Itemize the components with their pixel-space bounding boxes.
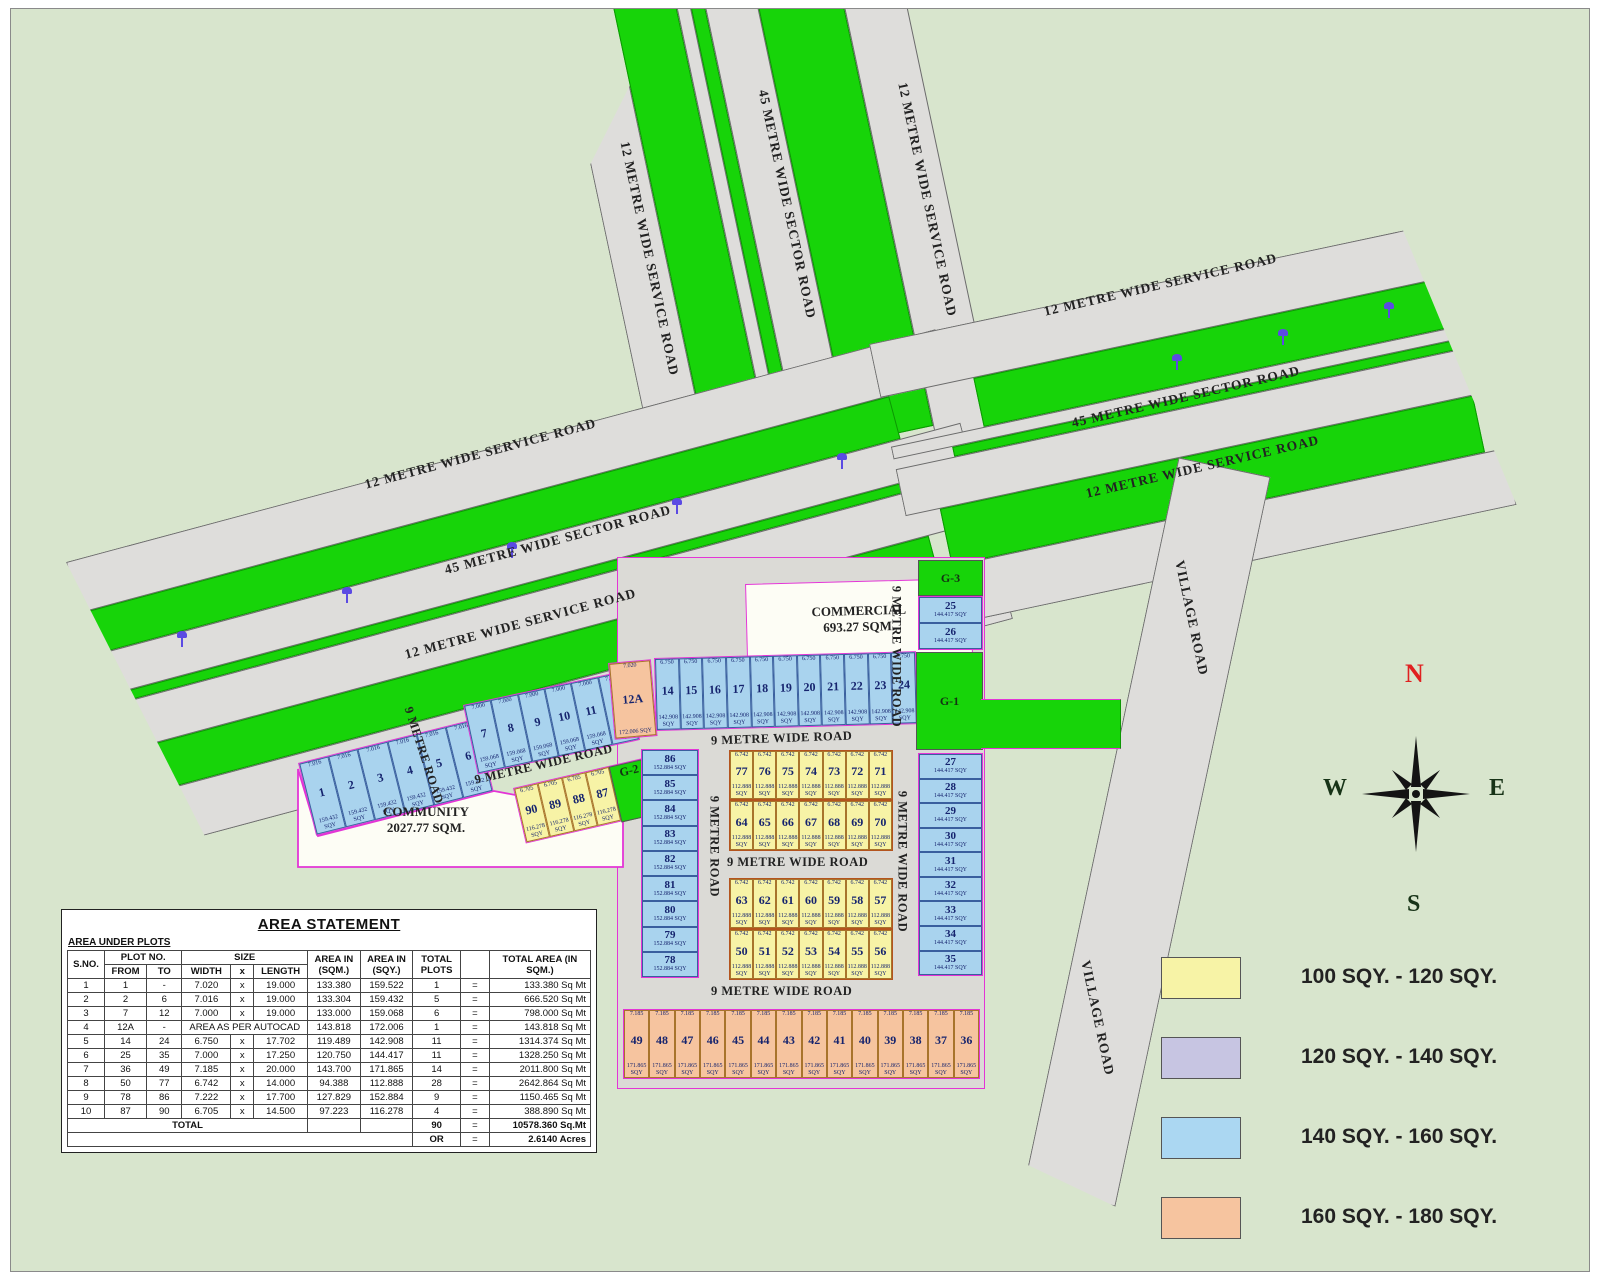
plot-number: 66 <box>782 816 794 829</box>
plot-number: 32 <box>945 880 956 891</box>
plot-number: 12A <box>622 692 644 707</box>
table-row: 2267.016x19.000133.304159.4325=666.520 S… <box>68 993 591 1007</box>
table-cell: 120.750 <box>308 1049 361 1063</box>
legend: 100 SQY. - 120 SQY.120 SQY. - 140 SQY.14… <box>1161 957 1497 1272</box>
table-cell: 388.890 Sq Mt <box>489 1105 590 1119</box>
plot-number: 59 <box>828 894 840 907</box>
plot-width: 6.742 <box>851 802 865 809</box>
plot-cell-82: 82152.884 SQY <box>642 851 698 876</box>
plot-number: 1 <box>317 785 326 799</box>
table-row: 1087906.705x14.50097.223116.2784=388.890… <box>68 1105 591 1119</box>
plot-number: 11 <box>584 703 598 718</box>
plot-area: 112.888 SQY <box>754 913 775 927</box>
plot-number: 4 <box>405 763 414 777</box>
table-cell: 19.000 <box>254 979 308 993</box>
plot-number: 45 <box>732 1034 744 1047</box>
plot-width: 6.742 <box>804 802 818 809</box>
plot-width: 6.705 <box>520 785 535 795</box>
plot-number: 49 <box>631 1034 643 1047</box>
plot-col-86-78: 86152.884 SQY85152.884 SQY84152.884 SQY8… <box>641 749 699 978</box>
table-cell: 159.432 <box>360 993 413 1007</box>
plot-area: 112.888 SQY <box>847 913 868 927</box>
table-cell: x <box>231 993 254 1007</box>
table-cell: 14.000 <box>254 1077 308 1091</box>
table-cell: = <box>460 1063 489 1077</box>
plot-cell-67: 6.74267112.888 SQY <box>799 801 822 850</box>
plot-number: 80 <box>665 905 676 916</box>
plot-number: 70 <box>874 816 886 829</box>
table-cell: 152.884 <box>360 1091 413 1105</box>
plot-area: 142.908 SQY <box>705 713 727 728</box>
plot-cell-66: 6.74266112.888 SQY <box>776 801 799 850</box>
plot-area: 144.417 SQY <box>934 916 967 923</box>
tree-icon <box>836 453 848 470</box>
table-cell: = <box>460 1077 489 1091</box>
plot-area: 112.888 SQY <box>777 913 798 927</box>
plot-cell-52: 6.74252112.888 SQY <box>776 930 799 979</box>
table-cell: = <box>460 1091 489 1105</box>
plot-cell-50: 6.74250112.888 SQY <box>730 930 753 979</box>
table-subtitle: AREA UNDER PLOTS <box>68 937 591 948</box>
table-row: 736497.185x20.000143.700171.86514=2011.8… <box>68 1063 591 1077</box>
table-cell <box>308 1119 361 1133</box>
plot-area: 112.888 SQY <box>800 964 821 978</box>
compass-east: E <box>1489 775 1505 802</box>
plot-cell-51: 6.74251112.888 SQY <box>753 930 776 979</box>
plot-area: 112.888 SQY <box>847 964 868 978</box>
plot-width: 6.742 <box>827 931 841 938</box>
col-header-plot-no: PLOT NO. <box>105 951 182 965</box>
plot-block-63-57: 6.74263112.888 SQY6.74262112.888 SQY6.74… <box>729 878 893 929</box>
community-label: COMMUNITY 2027.77 SQM. <box>331 804 521 836</box>
plot-width: 6.742 <box>851 752 865 759</box>
table-cell: x <box>231 979 254 993</box>
legend-swatch <box>1161 1037 1241 1079</box>
plot-area: 171.865 SQY <box>625 1063 648 1077</box>
legend-label: 100 SQY. - 120 SQY. <box>1301 965 1497 989</box>
road-label-9mw: 9 METRE WIDE ROAD <box>711 984 852 999</box>
table-cell: 133.304 <box>308 993 361 1007</box>
table-cell: 9 <box>68 1091 105 1105</box>
table-cell: x <box>231 1105 254 1119</box>
plot-cell-48: 7.18548171.865 SQY <box>649 1010 674 1078</box>
tree-icon <box>1277 329 1289 346</box>
plot-width: 6.742 <box>851 880 865 887</box>
plot-width: 6.742 <box>758 931 772 938</box>
plot-area: 152.884 SQY <box>653 815 686 822</box>
plot-area: 144.417 SQY <box>934 842 967 849</box>
table-cell: = <box>460 1119 489 1133</box>
table-cell: 35 <box>147 1049 182 1063</box>
table-cell: 143.818 Sq Mt <box>489 1021 590 1035</box>
plot-cell-76: 6.74276112.888 SQY <box>753 751 776 799</box>
community-area-value: 2027.77 SQM. <box>331 820 521 836</box>
plot-cell-69: 6.74269112.888 SQY <box>846 801 869 850</box>
plot-width: 6.742 <box>851 931 865 938</box>
plot-width: 6.742 <box>804 880 818 887</box>
table-cell: 2 <box>105 993 147 1007</box>
plot-number: 81 <box>665 880 676 891</box>
plot-area: 112.888 SQY <box>847 784 868 798</box>
plot-cell-63: 6.74263112.888 SQY <box>730 879 753 928</box>
plot-number: 48 <box>656 1034 668 1047</box>
col-header-total-area: TOTAL AREA (IN SQM.) <box>489 951 590 979</box>
table-cell: x <box>231 1063 254 1077</box>
plot-number: 56 <box>874 945 886 958</box>
plot-area: 112.888 SQY <box>824 964 845 978</box>
legend-item: 120 SQY. - 140 SQY. <box>1161 1037 1497 1117</box>
plot-area: 171.865 SQY <box>777 1063 800 1077</box>
plot-width: 6.742 <box>874 931 888 938</box>
plot-area: 144.417 SQY <box>934 793 967 800</box>
plot-width: 6.742 <box>804 931 818 938</box>
table-cell: 8 <box>68 1077 105 1091</box>
table-cell: 2 <box>68 993 105 1007</box>
table-cell: = <box>460 1049 489 1063</box>
plot-cell-86: 86152.884 SQY <box>642 750 698 775</box>
plot-area: 112.888 SQY <box>870 964 891 978</box>
plot-area: 112.888 SQY <box>731 835 752 849</box>
table-cell: 28 <box>413 1077 460 1091</box>
plot-cell-72: 6.74272112.888 SQY <box>846 751 869 799</box>
plot-width: 6.742 <box>874 752 888 759</box>
road-label-9mw-vertical: 9 METRE ROAD <box>707 762 722 932</box>
plot-12a: 7.02012A172.006 SQY <box>608 659 658 739</box>
table-cell: 4 <box>68 1021 105 1035</box>
plot-cell-85: 85152.884 SQY <box>642 775 698 800</box>
table-cell: x <box>231 1049 254 1063</box>
plot-area: 152.884 SQY <box>653 790 686 797</box>
table-cell: x <box>231 1007 254 1021</box>
plot-area: 112.888 SQY <box>777 784 798 798</box>
table-cell: 36 <box>105 1063 147 1077</box>
table-cell <box>68 1133 413 1147</box>
plot-cell-56: 6.74256112.888 SQY <box>869 930 892 979</box>
plot-width: 6.750 <box>707 658 721 665</box>
or-label: OR <box>413 1133 460 1147</box>
table-cell: 5 <box>413 993 460 1007</box>
plot-cell-25: 25144.417 SQY <box>919 597 982 623</box>
plot-number: 76 <box>759 765 771 778</box>
plot-number: 7 <box>480 726 489 740</box>
plot-width: 6.742 <box>804 752 818 759</box>
plot-number: 78 <box>665 955 676 966</box>
plot-area: 116.278 SQY <box>595 806 620 825</box>
plot-area: 171.865 SQY <box>803 1063 826 1077</box>
plot-area: 112.888 SQY <box>754 835 775 849</box>
green-arm-g1 <box>981 699 1121 749</box>
col-header-total-plots: TOTAL PLOTS <box>413 951 460 979</box>
plot-area: 116.278 SQY <box>548 817 573 836</box>
table-cell: 6.750 <box>182 1035 231 1049</box>
plot-area: 142.908 SQY <box>752 712 774 727</box>
table-cell: AREA AS PER AUTOCAD <box>182 1021 308 1035</box>
plot-number: 84 <box>665 804 676 815</box>
plot-area: 112.888 SQY <box>824 913 845 927</box>
table-cell: 86 <box>147 1091 182 1105</box>
plot-width: 6.750 <box>755 657 769 664</box>
plot-width: 6.742 <box>781 880 795 887</box>
plot-area: 171.865 SQY <box>726 1063 749 1077</box>
plot-number: 14 <box>662 684 674 697</box>
plot-area: 112.888 SQY <box>777 835 798 849</box>
plot-area: 112.888 SQY <box>800 835 821 849</box>
plot-cell-77: 6.74277112.888 SQY <box>730 751 753 799</box>
plot-area: 112.888 SQY <box>824 784 845 798</box>
table-cell: 142.908 <box>360 1035 413 1049</box>
plot-area: 116.278 SQY <box>524 822 549 841</box>
plot-row-14-24: 6.75014142.908 SQY6.75015142.908 SQY6.75… <box>654 651 918 731</box>
plot-number: 29 <box>945 806 956 817</box>
legend-item: 160 SQY. - 180 SQY. <box>1161 1197 1497 1272</box>
plot-width: 7.185 <box>807 1011 821 1018</box>
plot-cell-78: 78152.884 SQY <box>642 952 698 977</box>
compass-rose: N W E S <box>1321 659 1511 929</box>
plot-area: 171.865 SQY <box>853 1063 876 1077</box>
legend-label: 120 SQY. - 140 SQY. <box>1301 1045 1497 1069</box>
plot-cell-31: 31144.417 SQY <box>919 852 982 877</box>
plot-width: 6.742 <box>735 880 749 887</box>
table-cell: - <box>147 1021 182 1035</box>
plot-width: 6.742 <box>781 752 795 759</box>
plot-cell-43: 7.18543171.865 SQY <box>776 1010 801 1078</box>
plot-width: 7.185 <box>706 1011 720 1018</box>
table-cell: 1314.374 Sq Mt <box>489 1035 590 1049</box>
table-cell: 11 <box>413 1049 460 1063</box>
plot-width: 7.016 <box>425 730 440 740</box>
plot-number: 46 <box>707 1034 719 1047</box>
plot-width: 7.016 <box>395 738 410 748</box>
plot-cell-21: 6.75021142.908 SQY <box>820 654 845 726</box>
plot-number: 35 <box>945 954 956 965</box>
plot-number: 15 <box>685 683 697 696</box>
plot-cell-28: 28144.417 SQY <box>919 779 982 804</box>
plot-area: 112.888 SQY <box>731 784 752 798</box>
plot-number: 65 <box>759 816 771 829</box>
plot-cell-70: 6.74270112.888 SQY <box>869 801 892 850</box>
table-cell: 17.700 <box>254 1091 308 1105</box>
table-cell: 11 <box>413 1035 460 1049</box>
plot-number: 60 <box>805 894 817 907</box>
table-cell: 6 <box>147 993 182 1007</box>
plot-area: 144.417 SQY <box>934 768 967 775</box>
plot-area: 152.884 SQY <box>653 941 686 948</box>
plot-cell-44: 7.18544171.865 SQY <box>751 1010 776 1078</box>
plot-number: 30 <box>945 831 956 842</box>
plot-width: 6.705 <box>567 775 582 785</box>
plot-width: 6.742 <box>874 802 888 809</box>
plot-cell-42: 7.18542171.865 SQY <box>802 1010 827 1078</box>
g1-label: G-1 <box>917 653 982 749</box>
plot-number: 33 <box>945 905 956 916</box>
table-cell: 6 <box>413 1007 460 1021</box>
plot-width: 7.185 <box>782 1011 796 1018</box>
plot-number: 73 <box>828 765 840 778</box>
plot-cell-34: 34144.417 SQY <box>919 926 982 951</box>
plot-number: 67 <box>805 816 817 829</box>
plot-number: 71 <box>874 765 886 778</box>
plot-area: 171.865 SQY <box>752 1063 775 1077</box>
plot-width: 7.185 <box>960 1011 974 1018</box>
road-label-9mw: 9 METRE WIDE ROAD <box>727 855 868 870</box>
plot-number: 34 <box>945 929 956 940</box>
plot-number: 75 <box>782 765 794 778</box>
plot-cell-18: 6.75018142.908 SQY <box>750 656 775 728</box>
plot-area: 171.865 SQY <box>650 1063 673 1077</box>
plot-cell-73: 6.74273112.888 SQY <box>823 751 846 799</box>
plot-area: 142.908 SQY <box>728 713 750 728</box>
table-cell: 19.000 <box>254 1007 308 1021</box>
compass-south: S <box>1407 891 1420 918</box>
plot-number: 54 <box>828 945 840 958</box>
plot-cell-39: 7.18539171.865 SQY <box>878 1010 903 1078</box>
plot-number: 47 <box>681 1034 693 1047</box>
plot-width: 6.742 <box>735 931 749 938</box>
plot-number: 83 <box>665 829 676 840</box>
table-cell: = <box>460 1035 489 1049</box>
green-block-g3: G-3 <box>918 560 983 596</box>
legend-item: 140 SQY. - 160 SQY. <box>1161 1117 1497 1197</box>
plot-cell-33: 33144.417 SQY <box>919 901 982 926</box>
plot-cell-16: 6.75016142.908 SQY <box>702 657 727 729</box>
table-cell: 144.417 <box>360 1049 413 1063</box>
plot-area: 112.888 SQY <box>777 964 798 978</box>
plot-col-25-26: 25144.417 SQY26144.417 SQY <box>918 596 983 650</box>
table-cell: 133.380 <box>308 979 361 993</box>
table-cell: 7.000 <box>182 1049 231 1063</box>
table-cell: x <box>231 1035 254 1049</box>
plot-width: 7.185 <box>858 1011 872 1018</box>
legend-swatch <box>1161 1197 1241 1239</box>
plot-cell-17: 6.75017142.908 SQY <box>726 656 751 728</box>
table-cell: 12 <box>147 1007 182 1021</box>
table-cell: 90 <box>413 1119 460 1133</box>
tree-icon <box>176 631 188 648</box>
total-label: TOTAL <box>68 1119 308 1133</box>
plot-cell-38: 7.18538171.865 SQY <box>903 1010 928 1078</box>
table-cell: 3 <box>68 1007 105 1021</box>
table-cell: = <box>460 979 489 993</box>
table-total-row: TOTAL90=10578.360 Sq.Mt <box>68 1119 591 1133</box>
plot-area: 171.865 SQY <box>929 1063 952 1077</box>
plot-number: 21 <box>827 680 839 693</box>
legend-swatch <box>1161 1117 1241 1159</box>
plot-cell-80: 80152.884 SQY <box>642 901 698 926</box>
plot-width: 7.185 <box>630 1011 644 1018</box>
table-cell: 1150.465 Sq Mt <box>489 1091 590 1105</box>
table-cell: 19.000 <box>254 993 308 1007</box>
col-header-size: SIZE <box>182 951 308 965</box>
plot-cell-37: 7.18537171.865 SQY <box>928 1010 953 1078</box>
plan-canvas: 12 METRE WIDE SERVICE ROAD 45 METRE WIDE… <box>10 8 1590 1272</box>
plot-number: 22 <box>851 679 863 692</box>
plot-cell-84: 84152.884 SQY <box>642 800 698 825</box>
plot-cell-58: 6.74258112.888 SQY <box>846 879 869 928</box>
plot-cell-54: 6.74254112.888 SQY <box>823 930 846 979</box>
plot-number: 20 <box>803 680 815 693</box>
table-cell: 5 <box>68 1035 105 1049</box>
plot-area: 152.884 SQY <box>653 966 686 973</box>
plot-cell-45: 7.18545171.865 SQY <box>725 1010 750 1078</box>
plot-area: 152.884 SQY <box>653 891 686 898</box>
plot-area: 172.006 SQY <box>619 727 653 737</box>
plot-block-77-71: 6.74277112.888 SQY6.74276112.888 SQY6.74… <box>729 750 893 800</box>
plot-number: 82 <box>665 854 676 865</box>
table-cell: 6.705 <box>182 1105 231 1119</box>
plot-width: 7.185 <box>934 1011 948 1018</box>
tree-icon <box>671 498 683 515</box>
plot-area: 171.865 SQY <box>955 1063 978 1077</box>
plot-width: 7.016 <box>308 759 323 769</box>
plot-width: 7.000 <box>471 703 486 713</box>
plot-number: 10 <box>557 709 571 724</box>
table-cell: 133.000 <box>308 1007 361 1021</box>
plot-area: 142.908 SQY <box>847 709 869 724</box>
plot-width: 6.742 <box>735 752 749 759</box>
plot-cell-71: 6.74271112.888 SQY <box>869 751 892 799</box>
table-cell: 10578.360 Sq.Mt <box>489 1119 590 1133</box>
legend-swatch <box>1161 957 1241 999</box>
table-cell: 112.888 <box>360 1077 413 1091</box>
plot-block-50-56: 6.74250112.888 SQY6.74251112.888 SQY6.74… <box>729 929 893 980</box>
plot-number: 50 <box>736 945 748 958</box>
plot-width: 6.742 <box>781 931 795 938</box>
plot-number: 9 <box>533 715 542 729</box>
plot-number: 8 <box>506 721 515 735</box>
plot-width: 7.000 <box>498 697 513 707</box>
plot-number: 25 <box>945 601 956 612</box>
table-cell: 78 <box>105 1091 147 1105</box>
col-header-width: WIDTH <box>182 965 231 979</box>
table-cell: 159.522 <box>360 979 413 993</box>
table-row: 37127.000x19.000133.000159.0686=798.000 … <box>68 1007 591 1021</box>
plot-area: 171.865 SQY <box>676 1063 699 1077</box>
table-cell: 7.185 <box>182 1063 231 1077</box>
plot-number: 90 <box>524 802 539 817</box>
plot-width: 6.742 <box>827 880 841 887</box>
col-header-sno: S.NO. <box>68 951 105 979</box>
table-cell: = <box>460 1133 489 1147</box>
plot-number: 61 <box>782 894 794 907</box>
plot-cell-14: 6.75014142.908 SQY <box>655 658 680 730</box>
table-row: 514246.750x17.702119.489142.90811=1314.3… <box>68 1035 591 1049</box>
plot-number: 51 <box>759 945 771 958</box>
table-cell: x <box>231 1077 254 1091</box>
plot-number: 74 <box>805 765 817 778</box>
plot-width: 7.185 <box>681 1011 695 1018</box>
plot-number: 42 <box>808 1034 820 1047</box>
table-cell: 1 <box>413 979 460 993</box>
plot-width: 7.185 <box>757 1011 771 1018</box>
plot-area: 144.417 SQY <box>934 891 967 898</box>
plot-area: 112.888 SQY <box>870 835 891 849</box>
table-cell: 25 <box>105 1049 147 1063</box>
plot-cell-60: 6.74260112.888 SQY <box>799 879 822 928</box>
plot-area: 144.417 SQY <box>934 612 967 619</box>
table-cell: 50 <box>105 1077 147 1091</box>
plot-area: 171.865 SQY <box>879 1063 902 1077</box>
plot-cell-62: 6.74262112.888 SQY <box>753 879 776 928</box>
plot-width: 7.185 <box>884 1011 898 1018</box>
plot-number: 77 <box>736 765 748 778</box>
plot-area: 152.884 SQY <box>653 865 686 872</box>
col-header-eq <box>460 951 489 979</box>
col-header-x: x <box>231 965 254 979</box>
road-label-9mw-vertical: 9 METRE WIDE ROAD <box>889 572 904 742</box>
plot-width: 7.000 <box>525 691 540 701</box>
plot-area: 171.865 SQY <box>828 1063 851 1077</box>
table-cell: 87 <box>105 1105 147 1119</box>
